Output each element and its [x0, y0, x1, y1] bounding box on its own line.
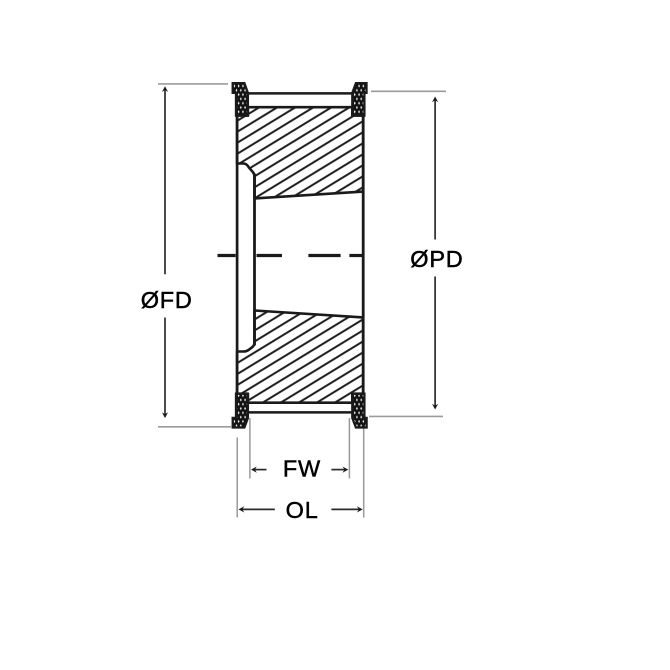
- svg-text:FW: FW: [283, 456, 321, 482]
- svg-text:ØFD: ØFD: [141, 287, 193, 313]
- svg-text:ØPD: ØPD: [410, 246, 463, 272]
- svg-text:OL: OL: [286, 497, 319, 523]
